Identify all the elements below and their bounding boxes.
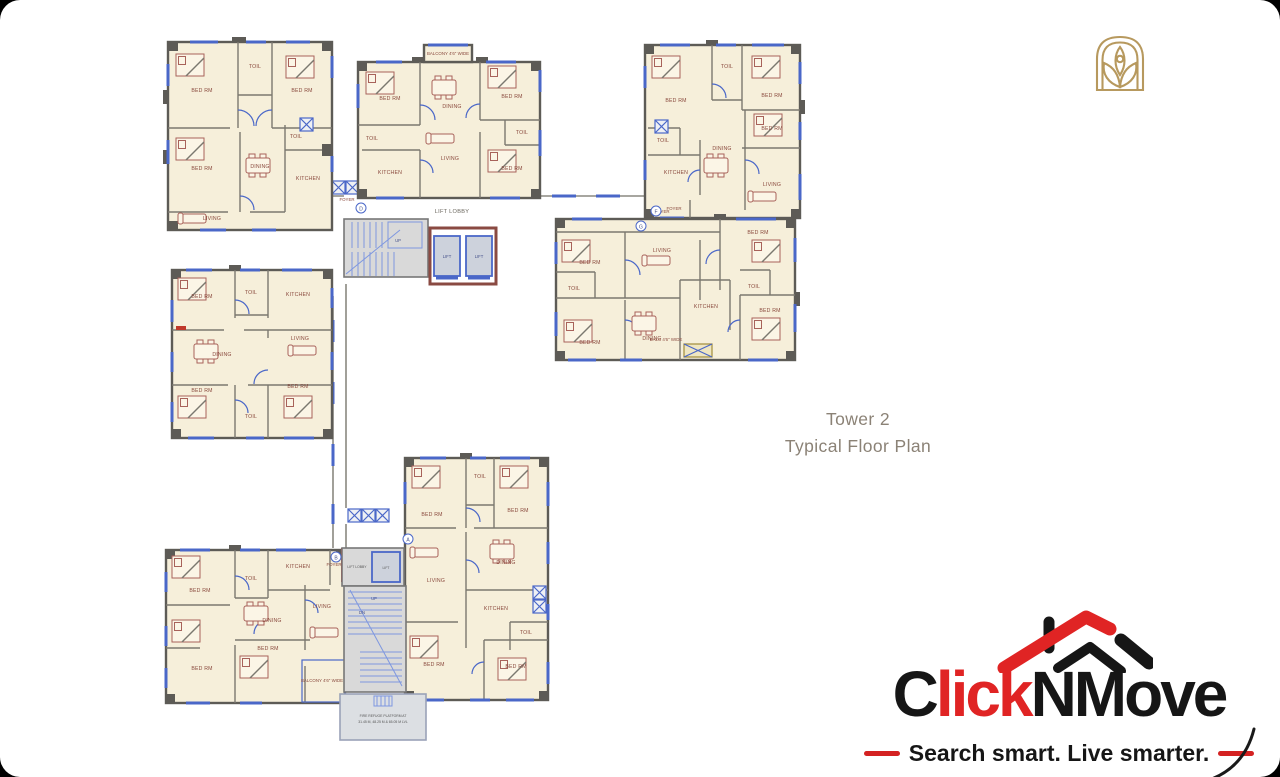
room-label: DINING [212, 352, 231, 358]
room-label: TOIL [568, 286, 580, 292]
room-label: LIVING [441, 156, 459, 162]
room-label: LIVING [313, 604, 331, 610]
room-label: TOIL [245, 576, 257, 582]
room-label: DINING [262, 618, 281, 624]
room-label: KITCHEN [286, 564, 310, 570]
room-label: BED RM [423, 662, 444, 668]
unit-top-right: BED RM TOIL BED RM TOIL BED RM KITCHEN D… [645, 40, 805, 218]
room-label: TOIL [721, 64, 733, 70]
plan-title: Tower 2 Typical Floor Plan [738, 406, 978, 460]
room-label: BED RM [759, 308, 780, 314]
lift-lobby-core-top: LIFT LOBBY UP LIFT LIFT [344, 209, 496, 284]
stair-dn-label: DN [359, 610, 365, 615]
room-label: BED RM [287, 384, 308, 390]
clicknmove-logo: ClickNMove Search smart. Live smarter. [858, 588, 1260, 773]
room-label: TOIL [474, 474, 486, 480]
room-label: KITCHEN [378, 170, 402, 176]
video-frame: BED RM TOIL BED RM BED RM DINING TOIL KI… [0, 0, 1280, 777]
duct-row-mid [348, 509, 389, 522]
room-label: TOIL [516, 130, 528, 136]
lift-label: LIFT [475, 254, 484, 259]
room-label: BED RM [191, 388, 212, 394]
room-label: BED RM [761, 126, 782, 132]
flat-marker-letter: D [359, 207, 363, 213]
lift-lobby-label: LIFT LOBBY [347, 565, 367, 569]
refuge-text: FIRE REFUGE PLATFORM AT [360, 714, 407, 718]
stair-up-label: UP [395, 238, 401, 243]
arch-lotus-emblem-icon [1093, 33, 1147, 93]
unit-top-center: BALCONY 4'6" WIDE BED RM DINING BED RM T… [358, 45, 540, 198]
page-canvas: BED RM TOIL BED RM BED RM DINING TOIL KI… [0, 0, 1280, 777]
room-label: DINING [496, 560, 515, 566]
room-label: BED RM [505, 664, 526, 670]
room-label: BED RM [747, 230, 768, 236]
room-label: DINING [442, 104, 461, 110]
room-label: BED RM [257, 646, 278, 652]
room-label: KITCHEN [296, 176, 320, 182]
room-label: LIVING [427, 578, 445, 584]
room-label: BED RM [191, 666, 212, 672]
room-label: TOIL [657, 138, 669, 144]
room-label: BED RM [291, 88, 312, 94]
tower-name: Tower 2 [738, 406, 978, 433]
room-label: TOIL [290, 134, 302, 140]
stair-up-label: UP [371, 596, 377, 601]
room-label: BED RM [189, 588, 210, 594]
room-label: BED RM [501, 94, 522, 100]
room-label: TOIL [249, 64, 261, 70]
room-label: BED RM [191, 166, 212, 172]
room-label: BALCONY 4'6" WIDE [427, 51, 469, 56]
lift-lobby-label: LIFT LOBBY [435, 209, 470, 215]
room-label: KITCHEN [286, 292, 310, 298]
room-label: BED RM [379, 96, 400, 102]
plan-type: Typical Floor Plan [738, 433, 978, 460]
room-label: LIVING [653, 248, 671, 254]
room-label: BED RM [665, 98, 686, 104]
room-label: BED RM [579, 260, 600, 266]
room-label: BED RM [191, 294, 212, 300]
room-label: FOYER [339, 197, 354, 202]
room-label: BALC 4'6" WIDE [650, 337, 683, 342]
room-label: DINING [712, 146, 731, 152]
lift-label: LIFT [443, 254, 452, 259]
room-label: BED RM [191, 88, 212, 94]
room-label: DINING [250, 164, 269, 170]
room-label: TOIL [245, 290, 257, 296]
room-label: BED RM [761, 93, 782, 99]
room-label: BALCONY 4'6" WIDE [301, 678, 343, 683]
room-label: TOIL [748, 284, 760, 290]
room-label: KITCHEN [484, 606, 508, 612]
lift-label: LIFT [383, 566, 390, 570]
room-label: KITCHEN [694, 304, 718, 310]
unit-bottom-center: BED RM TOIL BED RM LIVING DINING KITCHEN… [405, 453, 548, 700]
flat-marker-letter: F [654, 210, 657, 216]
tagline-left-dash [864, 751, 900, 756]
refuge-text: 31.45 M, 48.25 M & 65.05 M LVL [358, 720, 408, 724]
room-label: BED RM [501, 166, 522, 172]
room-label: TOIL [520, 630, 532, 636]
swoosh-curve [1196, 711, 1266, 777]
room-label: BED RM [579, 340, 600, 346]
wordmark-lick: lick [936, 658, 1031, 730]
room-label: FOYER [326, 562, 341, 567]
unit-mid-left: BED RM TOIL KITCHEN DINING LIVING BED RM… [172, 265, 332, 438]
wordmark-c: C [893, 658, 936, 730]
room-label: KITCHEN [664, 170, 688, 176]
unit-mid-right: FOYER BED RM LIVING BED RM TOIL BED RM D… [556, 209, 800, 360]
tagline-text: Search smart. Live smarter. [909, 740, 1209, 767]
room-label: TOIL [366, 136, 378, 142]
room-label: LIVING [763, 182, 781, 188]
room-label: LIVING [291, 336, 309, 342]
room-label: LIVING [203, 216, 221, 222]
room-label: BED RM [507, 508, 528, 514]
room-label: BED RM [421, 512, 442, 518]
room-label: TOIL [245, 414, 257, 420]
flat-marker-letter: G [639, 225, 643, 231]
unit-top-left: BED RM TOIL BED RM BED RM DINING TOIL KI… [163, 37, 355, 230]
